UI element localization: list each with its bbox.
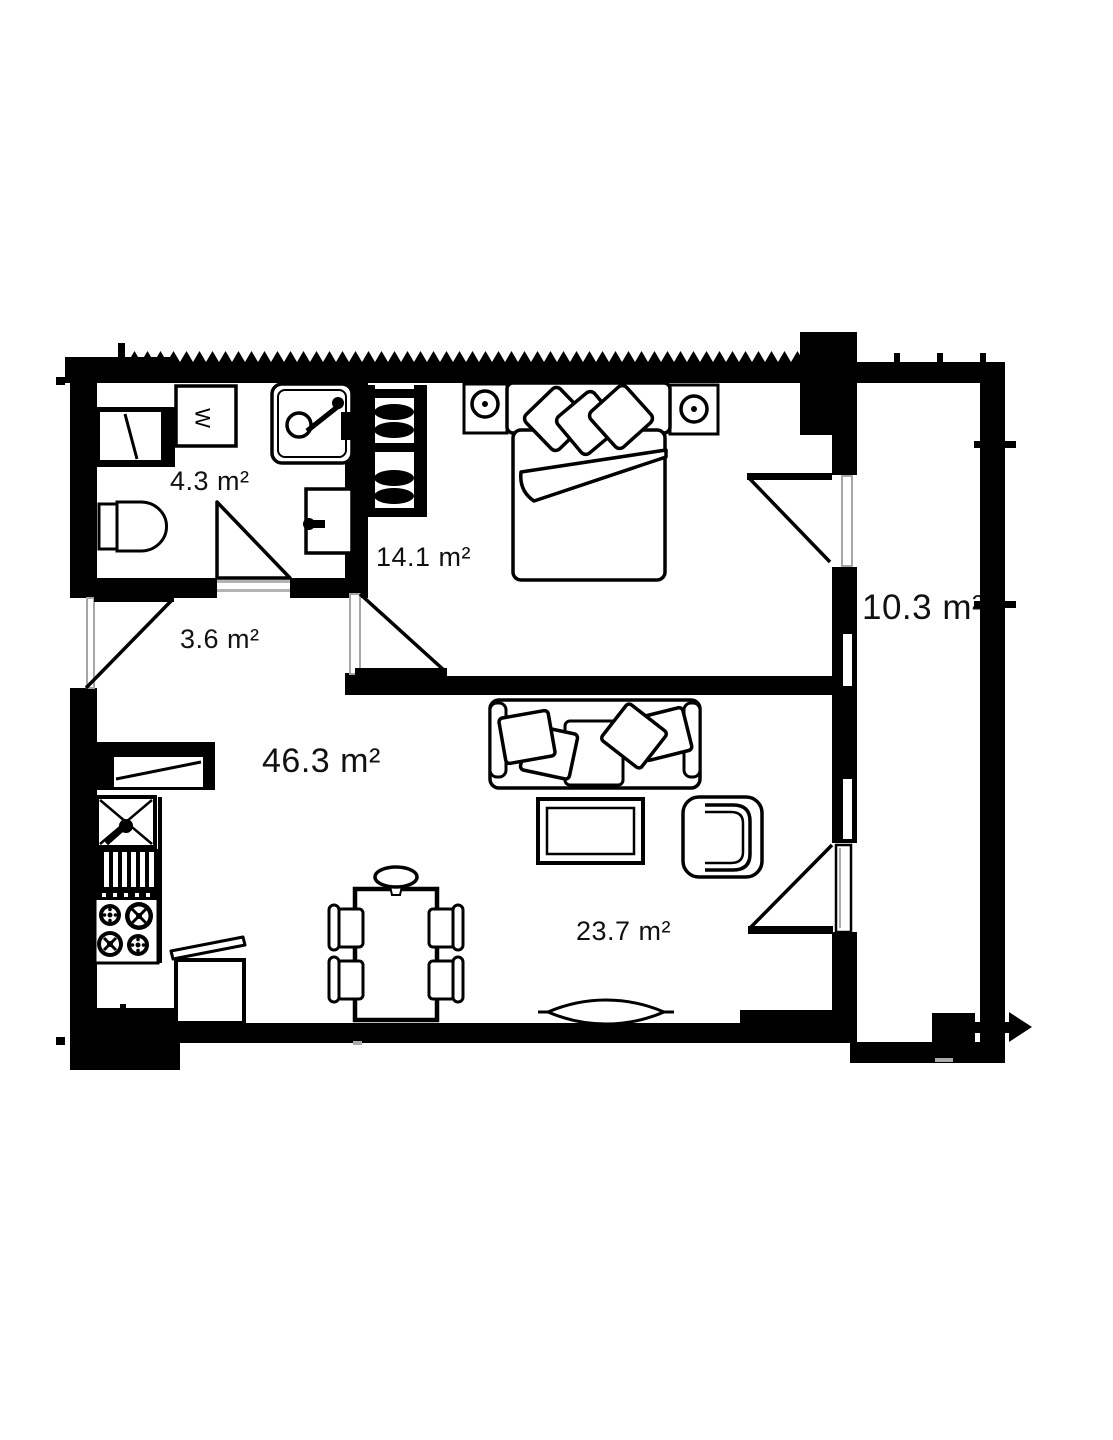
sofa [490,700,700,788]
windowsill-plant [538,1000,674,1024]
toilet [99,502,167,551]
nightstand-left [464,384,507,433]
burner-bottom-left [97,931,123,957]
nightstand-right [670,385,718,434]
burner-top-left [99,904,121,926]
burner-top-right [125,902,153,930]
washing-machine-label: W [191,408,214,428]
kitchen-drainer [97,849,158,890]
entrance-door [86,594,174,688]
bedroom-window-slot [843,634,852,686]
insulated-wall-hatch [115,351,801,362]
trash-bin [171,937,245,1023]
wardrobe-rack [362,385,427,517]
kitchen-sink [97,797,155,847]
armchair [683,797,762,877]
bed [507,383,670,580]
burner-bottom-right [127,934,149,956]
floor-plan-drawing: W [0,0,1113,1440]
apartment-floor-plan: 4.3 m² 3.6 m² 14.1 m² 46.3 m² 23.7 m² 10… [0,0,1113,1440]
bedroom-balcony-door [747,473,852,566]
bathroom-sink [272,384,352,463]
coffee-table [538,799,643,863]
stove [95,890,158,963]
washbasin [303,489,352,553]
dining-table [355,867,437,1020]
bathroom-door [217,502,290,592]
living-window-slot [843,779,852,839]
bedroom-door [350,594,447,676]
washing-machine: W [176,386,236,446]
bathroom-cabinet [95,407,175,467]
